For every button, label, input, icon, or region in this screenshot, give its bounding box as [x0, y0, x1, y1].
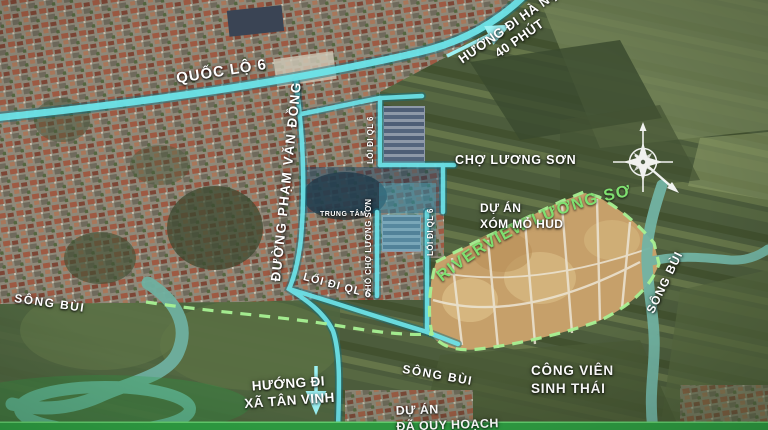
eco-park-label: CÔNG VIÊN SINH THÁI	[531, 362, 614, 397]
alley-ql6-upper-label: LỐI ĐI QL 6	[366, 106, 376, 174]
eco-park-line2: SINH THÁI	[531, 380, 614, 398]
hud-project-label: DỰ ÁN XÓM MỎ HUD	[480, 201, 563, 232]
market-street-label: PHỐ CHỢ LƯƠNG SƠN	[364, 208, 374, 296]
market-label: CHỢ LƯƠNG SƠN	[455, 153, 577, 169]
bottom-green-bar	[0, 423, 768, 430]
alley-ql6-right-label: LỐI ĐI QL 6	[426, 203, 436, 261]
town-center-label: TRUNG TÂM	[320, 211, 367, 220]
planned-project-label: DỰ ÁN ĐÃ QUY HOẠCH	[395, 399, 499, 430]
hud-project-line2: XÓM MỎ HUD	[480, 217, 563, 233]
eco-park-line1: CÔNG VIÊN	[531, 362, 614, 380]
hud-project-line1: DỰ ÁN	[480, 201, 563, 217]
planned-project-line2: ĐÃ QUY HOẠCH	[396, 415, 499, 430]
satellite-location-map: RIVERVIEW LƯƠNG SƠN QUỐC LỘ 6 HƯỚNG ĐI H…	[0, 0, 768, 430]
map-artwork: RIVERVIEW LƯƠNG SƠN	[0, 0, 768, 430]
